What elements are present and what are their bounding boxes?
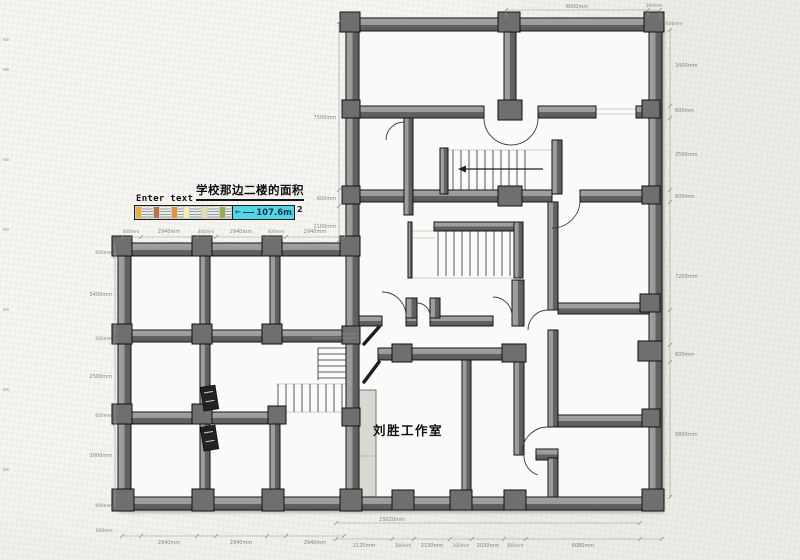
area-superscript: 2 xyxy=(297,205,303,214)
dim-label: 2940mm xyxy=(230,540,253,546)
paper-artifact xyxy=(3,228,9,231)
studio-room-label: 刘胜工作室 xyxy=(373,420,443,439)
dim-label: 600mm xyxy=(95,336,112,342)
dim-label: 2940mm xyxy=(230,229,253,235)
palette-swatch xyxy=(190,207,195,218)
palette-swatch xyxy=(220,207,225,218)
dim-label: 400mm xyxy=(268,229,285,235)
palette-swatches xyxy=(135,206,232,219)
dim-label: 2500mm xyxy=(90,374,113,380)
dim-label: 2940mm xyxy=(304,229,327,235)
dim-label: 6000mm xyxy=(566,4,589,10)
dim-label: 600mm xyxy=(675,108,694,114)
dim-label: 600mm xyxy=(675,194,694,200)
palette-swatch xyxy=(136,207,141,218)
area-value: 107.6m xyxy=(256,208,292,218)
dim-label: 300mm xyxy=(453,543,470,549)
dim-label: 600mm xyxy=(95,413,112,419)
dim-label: 2500mm xyxy=(675,152,698,158)
dim-label: 7500mm xyxy=(314,115,337,121)
dim-label: 600mm xyxy=(317,196,336,202)
palette-strip: ←107.6m xyxy=(134,205,295,220)
drawing-canvas: 6000mm 300mm 600mm 3400mm 600mm 2500mm 6… xyxy=(0,0,800,560)
dim-label: 6080mm xyxy=(572,543,595,549)
leader-line xyxy=(243,212,254,213)
floor-plan: 6000mm 300mm 600mm 3400mm 600mm 2500mm 6… xyxy=(0,0,800,560)
paper-artifact xyxy=(3,388,9,391)
paper-artifact xyxy=(3,68,9,71)
palette-swatch xyxy=(208,207,213,218)
dim-label: 6800mm xyxy=(675,432,698,438)
dim-label: 2030mm xyxy=(477,543,500,549)
dim-label: 2120mm xyxy=(353,543,376,549)
drawing-title: 学校那边二楼的面积 xyxy=(196,182,304,201)
paper-artifact xyxy=(3,38,9,41)
dim-label: 400mm xyxy=(123,229,140,235)
palette-swatch xyxy=(172,207,177,218)
dim-label: 7200mm xyxy=(675,274,698,280)
enter-text-hint: Enter text xyxy=(136,194,193,204)
palette-swatch xyxy=(196,207,201,218)
dim-label: 600mm xyxy=(675,352,694,358)
palette-swatch xyxy=(214,207,219,218)
palette-swatch xyxy=(226,207,231,218)
dim-label: 300mm xyxy=(507,543,524,549)
palette-swatch xyxy=(166,207,171,218)
paper-artifact xyxy=(3,308,9,311)
dim-label: 600mm xyxy=(95,250,112,256)
dim-label: 2940mm xyxy=(158,229,181,235)
dim-label: 2940mm xyxy=(304,540,327,546)
area-input[interactable]: ←107.6m xyxy=(232,206,294,219)
dim-label: 3400mm xyxy=(90,292,113,298)
dim-label: 600mm xyxy=(95,503,112,509)
arrow-icon: ← xyxy=(235,209,241,216)
palette-swatch xyxy=(202,207,207,218)
dim-label: 600mm xyxy=(96,528,113,534)
palette-swatch xyxy=(184,207,189,218)
palette-swatch xyxy=(142,207,147,218)
dim-label: 300mm xyxy=(646,3,663,9)
palette-swatch xyxy=(148,207,153,218)
palette-swatch xyxy=(154,207,159,218)
dim-label: 2130mm xyxy=(421,543,444,549)
dim-label: 400mm xyxy=(198,229,215,235)
paper-artifact xyxy=(3,158,9,161)
palette-swatch xyxy=(160,207,165,218)
dim-label: 3400mm xyxy=(675,63,698,69)
palette-swatch xyxy=(178,207,183,218)
dim-label: 300mm xyxy=(395,543,412,549)
dim-label: 3000mm xyxy=(90,453,113,459)
dim-label: 2940mm xyxy=(158,540,181,546)
dim-label: 25020mm xyxy=(379,517,405,523)
paper-artifact xyxy=(3,468,9,471)
dim-label: 600mm xyxy=(666,21,683,27)
